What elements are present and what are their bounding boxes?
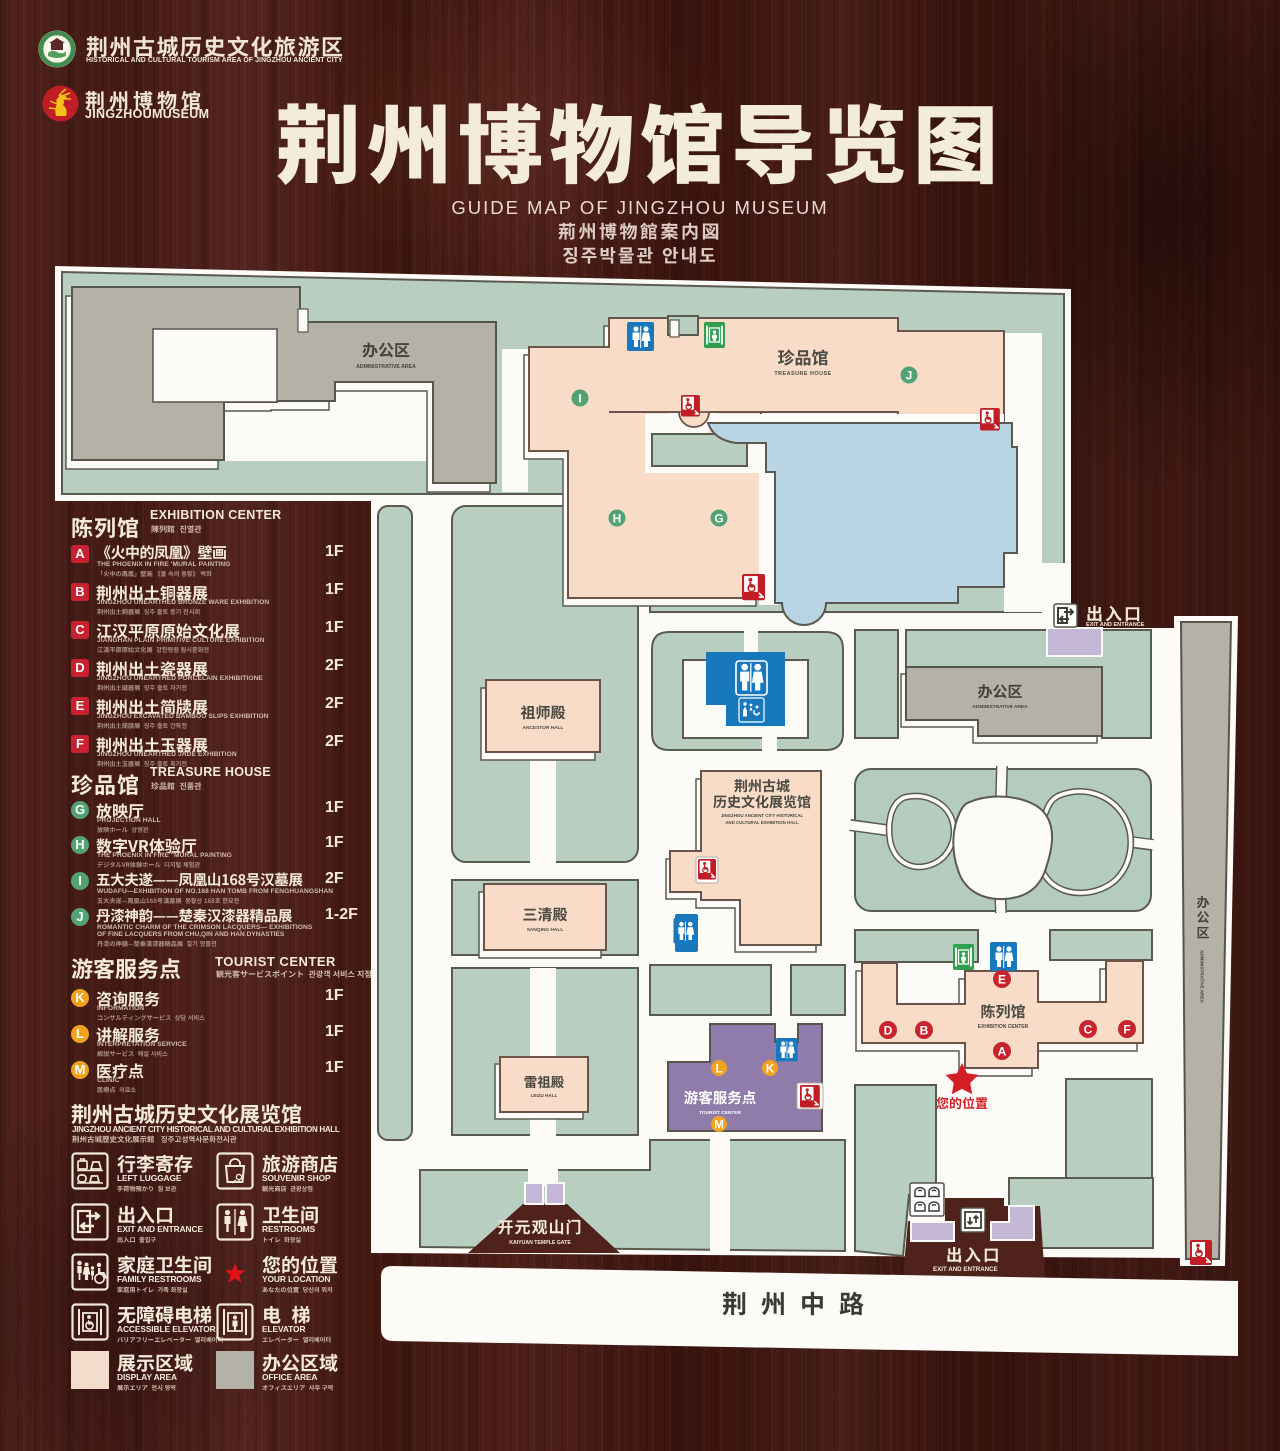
svg-text:C: C: [1084, 1023, 1093, 1037]
svg-text:EXHIBITION CENTER: EXHIBITION CENTER: [978, 1024, 1029, 1030]
svg-text:ANCESTOR HALL: ANCESTOR HALL: [523, 725, 564, 731]
svg-text:EXIT AND ENTRANCE: EXIT AND ENTRANCE: [1086, 622, 1145, 628]
svg-text:F: F: [1123, 1023, 1130, 1037]
svg-text:B: B: [920, 1024, 929, 1038]
svg-text:开元观山门: 开元观山门: [497, 1214, 582, 1238]
svg-text:G: G: [714, 512, 723, 526]
svg-text:SANQING HALL: SANQING HALL: [527, 927, 564, 933]
svg-text:雷祖殿: 雷祖殿: [524, 1071, 565, 1091]
svg-text:办公区: 办公区: [362, 337, 410, 361]
svg-text:LEIZU HALL: LEIZU HALL: [531, 1093, 558, 1098]
svg-text:D: D: [884, 1024, 893, 1038]
svg-text:KAIYUAN TEMPLE GATE: KAIYUAN TEMPLE GATE: [509, 1240, 571, 1246]
svg-text:I: I: [578, 392, 581, 406]
svg-text:M: M: [714, 1120, 724, 1132]
svg-text:JINGZHOU ANCIENT CITY HISTORIC: JINGZHOU ANCIENT CITY HISTORICAL: [721, 813, 804, 818]
svg-text:E: E: [998, 973, 1006, 987]
svg-text:出入口: 出入口: [946, 1242, 1002, 1266]
svg-text:ADMINISTRATIVE AREA: ADMINISTRATIVE AREA: [356, 364, 416, 370]
svg-text:EXIT AND ENTRANCE: EXIT AND ENTRANCE: [933, 1266, 998, 1273]
svg-text:ADMINISTRATIVE AREA: ADMINISTRATIVE AREA: [972, 704, 1028, 710]
svg-text:A: A: [998, 1045, 1007, 1059]
svg-text:陈列馆: 陈列馆: [980, 1001, 1025, 1022]
svg-text:H: H: [613, 512, 622, 526]
svg-text:珍品馆: 珍品馆: [778, 344, 829, 369]
svg-text:办公区: 办公区: [1194, 896, 1213, 941]
svg-text:ADMINISTRATIVE AREA: ADMINISTRATIVE AREA: [1200, 950, 1205, 1004]
svg-text:K: K: [766, 1064, 775, 1076]
svg-text:AND CULTURAL EXHIBITION HALL: AND CULTURAL EXHIBITION HALL: [725, 820, 799, 825]
svg-text:TREASURE HOUSE: TREASURE HOUSE: [774, 371, 831, 377]
svg-text:荆州中路: 荆州中路: [722, 1285, 878, 1321]
svg-text:祖师殿: 祖师殿: [520, 702, 565, 723]
svg-text:TOURIST CENTER: TOURIST CENTER: [699, 1110, 742, 1116]
svg-text:办公区: 办公区: [977, 681, 1022, 702]
svg-text:您的位置: 您的位置: [936, 1093, 988, 1112]
svg-text:L: L: [715, 1064, 722, 1076]
svg-text:J: J: [906, 369, 913, 383]
svg-text:历史文化展览馆: 历史文化展览馆: [713, 792, 811, 812]
svg-text:游客服务点: 游客服务点: [684, 1087, 757, 1108]
svg-text:三清殿: 三清殿: [522, 904, 567, 925]
